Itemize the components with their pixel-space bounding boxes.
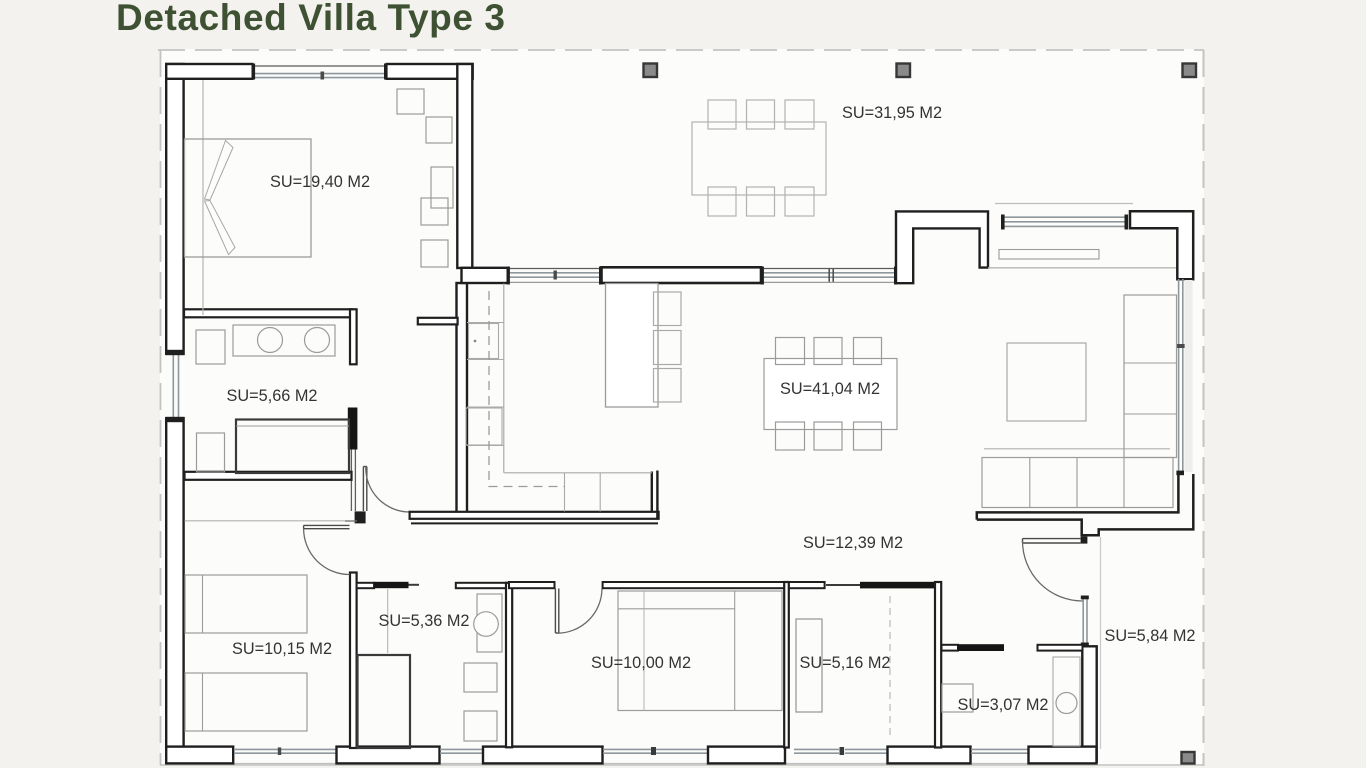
svg-text:SU=10,00 M2: SU=10,00 M2 xyxy=(591,654,691,672)
svg-text:SU=5,66 M2: SU=5,66 M2 xyxy=(227,387,318,405)
svg-text:SU=3,07 M2: SU=3,07 M2 xyxy=(958,696,1049,714)
svg-text:SU=31,95 M2: SU=31,95 M2 xyxy=(842,104,942,122)
svg-text:SU=5,84 M2: SU=5,84 M2 xyxy=(1105,627,1196,645)
svg-text:SU=5,36 M2: SU=5,36 M2 xyxy=(379,612,470,630)
svg-text:Detached Villa Type 3: Detached Villa Type 3 xyxy=(116,0,506,38)
svg-text:SU=12,39 M2: SU=12,39 M2 xyxy=(803,534,903,552)
svg-text:SU=5,16 M2: SU=5,16 M2 xyxy=(800,654,891,672)
svg-text:SU=19,40 M2: SU=19,40 M2 xyxy=(270,173,370,191)
svg-text:SU=10,15 M2: SU=10,15 M2 xyxy=(232,640,332,658)
svg-text:SU=41,04 M2: SU=41,04 M2 xyxy=(780,380,880,398)
